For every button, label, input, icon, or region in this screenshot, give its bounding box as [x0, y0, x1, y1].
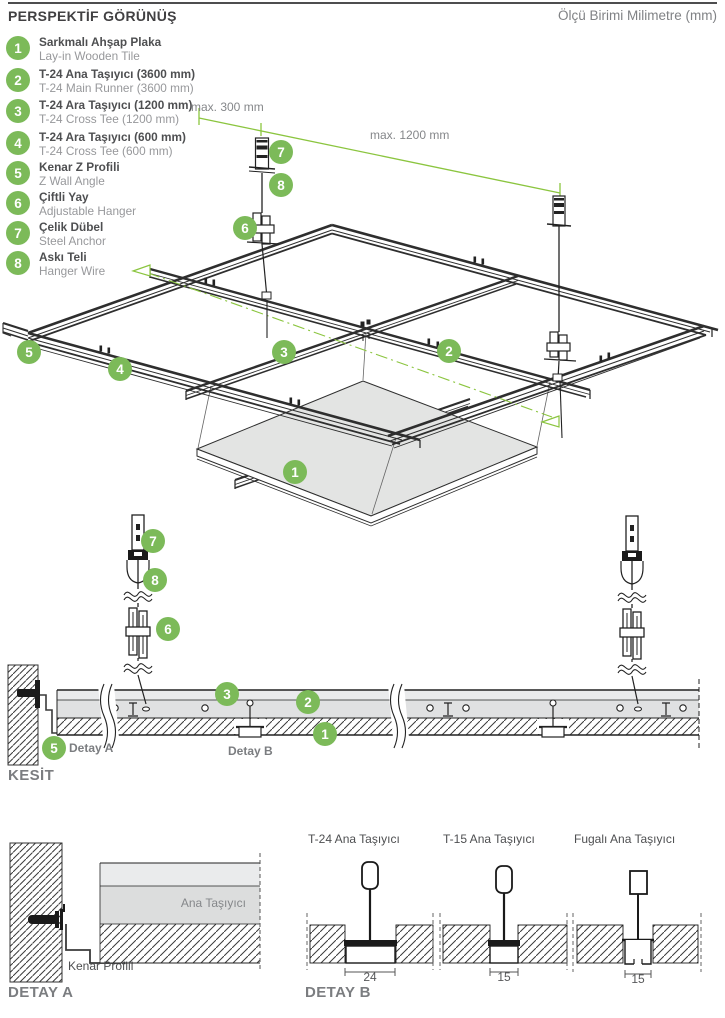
callout-5-section: 5 — [42, 736, 66, 760]
detail-b-t15 — [440, 866, 567, 976]
legend-badge-2: 2 — [6, 68, 30, 92]
callout-1-section: 1 — [313, 722, 337, 746]
legend-item-1: 1 Sarkmalı Ahşap Plaka Lay-in Wooden Til… — [6, 36, 161, 63]
perspective-drawing — [0, 95, 725, 540]
callout-3-perspective: 3 — [272, 340, 296, 364]
legend-item-2: 2 T-24 Ana Taşıyıcı (3600 mm) T-24 Main … — [6, 68, 195, 95]
main-runner-label: Ana Taşıyıcı — [146, 896, 246, 910]
profile-t24-name: T-24 Ana Taşıyıcı — [308, 832, 400, 846]
detail-a-title: DETAY A — [8, 984, 73, 1001]
section-hanger-right — [617, 516, 649, 704]
hanger-assembly-right — [544, 196, 576, 438]
detail-a-ref-label: Detay A — [69, 741, 113, 755]
callout-8-perspective: 8 — [269, 173, 293, 197]
detail-b-fugali — [573, 871, 701, 978]
top-rule — [8, 2, 717, 4]
ceiling-band — [57, 679, 699, 750]
legend-label-tr: T-24 Ana Taşıyıcı (3600 mm) — [39, 68, 195, 82]
profile-t15-name: T-15 Ana Taşıyıcı — [443, 832, 535, 846]
dimension-lines — [199, 108, 560, 198]
z-wall-angle — [3, 323, 28, 340]
detail-b-ref-label: Detay B — [228, 744, 273, 758]
dim-t24-value: 24 — [358, 970, 382, 984]
callout-2-perspective: 2 — [437, 339, 461, 363]
dim-t15-value: 15 — [492, 970, 516, 984]
callout-3-section: 3 — [215, 682, 239, 706]
callout-4-perspective: 4 — [108, 357, 132, 381]
dim-fugali-value: 15 — [626, 972, 650, 986]
detail-b-title: DETAY B — [305, 984, 371, 1001]
profile-fugali-name: Fugalı Ana Taşıyıcı — [574, 832, 675, 846]
callout-1-perspective: 1 — [283, 460, 307, 484]
legend-label-en: T-24 Main Runner (3600 mm) — [39, 82, 195, 96]
units-label: Ölçü Birimi Milimetre (mm) — [558, 8, 717, 23]
drop-tile — [197, 333, 550, 526]
edge-profile-label: Kenar Profili — [68, 959, 133, 973]
callout-8-section: 8 — [143, 568, 167, 592]
callout-2-section: 2 — [296, 690, 320, 714]
detail-b-t24 — [307, 862, 433, 976]
cross-tee-1200 — [186, 276, 518, 400]
callout-6-section: 6 — [156, 617, 180, 641]
detail-a-drawing — [10, 843, 260, 982]
technical-diagram-page: PERSPEKTİF GÖRÜNÜŞ Ölçü Birimi Milimetre… — [0, 0, 725, 1018]
section-title: KESİT — [8, 767, 54, 784]
callout-7-perspective: 7 — [269, 140, 293, 164]
page-title: PERSPEKTİF GÖRÜNÜŞ — [8, 8, 177, 24]
dim-300-label: max. 300 mm — [191, 100, 264, 114]
callout-7-section: 7 — [141, 529, 165, 553]
legend-badge-1: 1 — [6, 36, 30, 60]
callout-5-perspective: 5 — [17, 340, 41, 364]
callout-6-perspective: 6 — [233, 216, 257, 240]
legend-label-tr: Sarkmalı Ahşap Plaka — [39, 36, 161, 50]
legend-label-en: Lay-in Wooden Tile — [39, 50, 161, 64]
dim-1200-label: max. 1200 mm — [370, 128, 449, 142]
